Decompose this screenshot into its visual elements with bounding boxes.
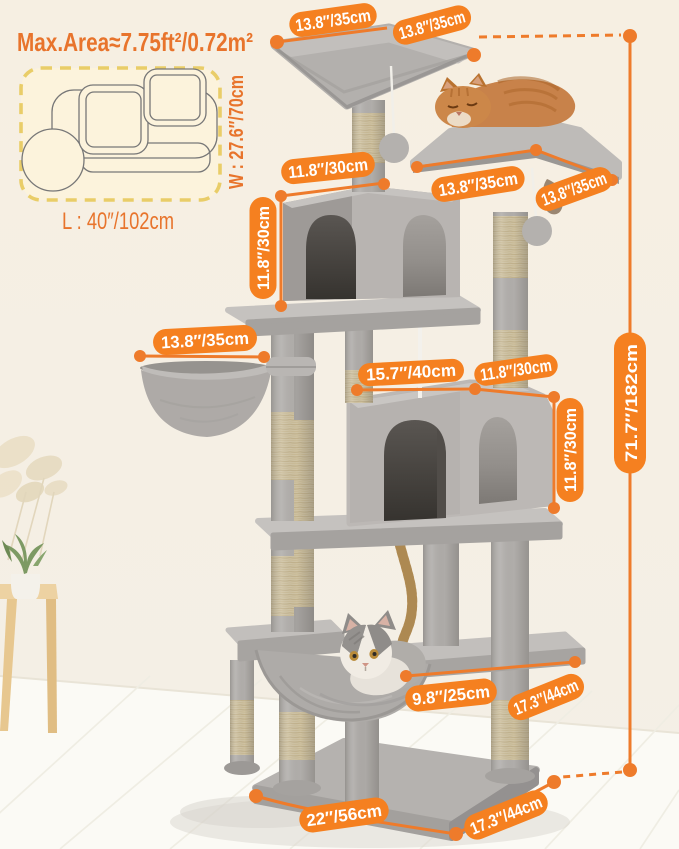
svg-text:W : 27.6″/70cm: W : 27.6″/70cm [226, 75, 248, 189]
svg-text:Max.Area≈7.75ft²/0.72m²: Max.Area≈7.75ft²/0.72m² [17, 27, 253, 57]
svg-text:11.8″/30cm: 11.8″/30cm [561, 408, 580, 492]
svg-text:71.7″/182cm: 71.7″/182cm [622, 344, 641, 462]
svg-text:11.8″/30cm: 11.8″/30cm [254, 206, 273, 290]
svg-text:L : 40″/102cm: L : 40″/102cm [62, 208, 174, 235]
